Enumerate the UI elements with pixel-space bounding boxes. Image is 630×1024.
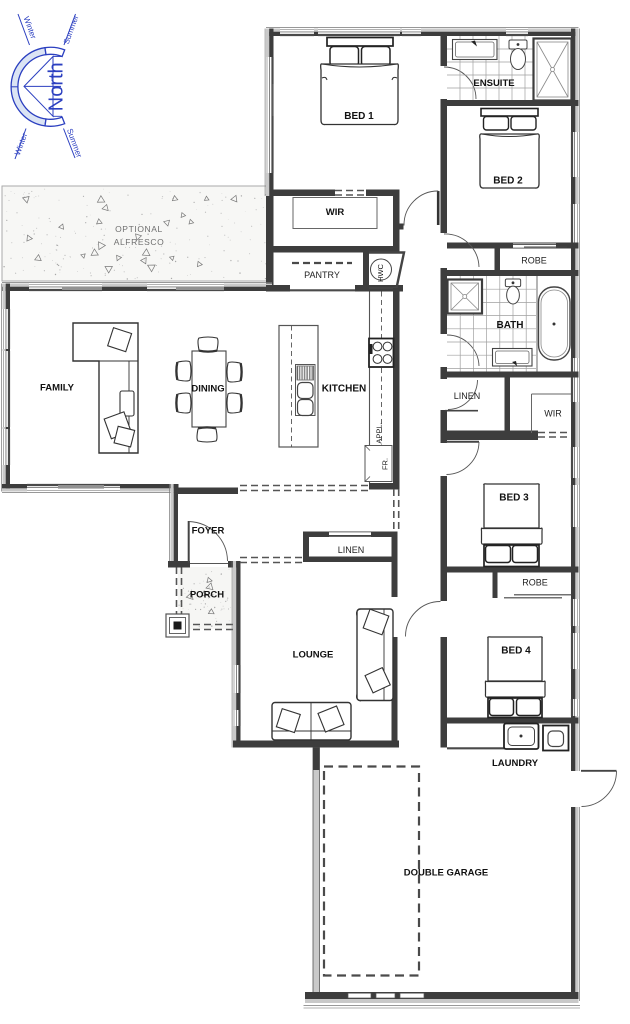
svg-text:PORCH: PORCH <box>190 590 224 601</box>
svg-text:HWC: HWC <box>376 263 385 281</box>
svg-text:WIR: WIR <box>544 409 562 419</box>
svg-text:ENSUITE: ENSUITE <box>473 78 514 89</box>
svg-text:ALFRESCO: ALFRESCO <box>114 237 165 247</box>
svg-text:APPL.: APPL. <box>375 422 384 443</box>
svg-text:LINEN: LINEN <box>338 545 365 555</box>
svg-text:LINEN: LINEN <box>454 391 481 401</box>
svg-text:FOYER: FOYER <box>192 526 225 537</box>
svg-text:LAUNDRY: LAUNDRY <box>492 758 539 769</box>
svg-text:ROBE: ROBE <box>521 256 547 266</box>
svg-text:OPTIONAL: OPTIONAL <box>115 224 163 234</box>
svg-text:BED 2: BED 2 <box>493 176 523 187</box>
svg-text:North: North <box>46 62 68 111</box>
svg-text:PANTRY: PANTRY <box>304 270 340 280</box>
svg-text:BED 3: BED 3 <box>499 493 529 504</box>
svg-text:WIR: WIR <box>326 207 345 218</box>
svg-text:BATH: BATH <box>496 320 523 331</box>
svg-text:DINING: DINING <box>191 384 224 395</box>
svg-text:BED 1: BED 1 <box>344 111 374 122</box>
svg-text:KITCHEN: KITCHEN <box>322 384 366 395</box>
svg-text:BED 4: BED 4 <box>501 646 531 657</box>
svg-text:FR.: FR. <box>381 458 390 470</box>
svg-text:FAMILY: FAMILY <box>40 383 75 394</box>
svg-text:LOUNGE: LOUNGE <box>293 650 334 661</box>
svg-text:ROBE: ROBE <box>522 578 548 588</box>
svg-text:DOUBLE GARAGE: DOUBLE GARAGE <box>404 868 488 879</box>
